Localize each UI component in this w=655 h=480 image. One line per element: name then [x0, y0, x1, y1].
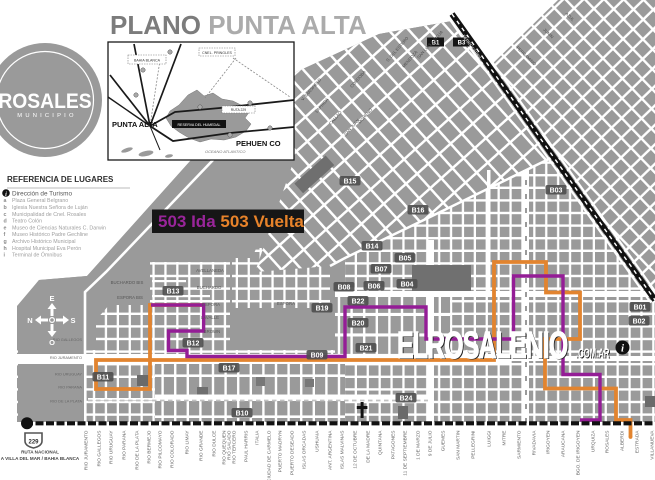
svg-text:RIO DULCE: RIO DULCE: [212, 431, 218, 457]
svg-text:RIO PARANA: RIO PARANA: [58, 385, 82, 390]
svg-text:REFERENCIA DE LUGARES: REFERENCIA DE LUGARES: [7, 175, 114, 184]
svg-text:B10: B10: [236, 411, 249, 418]
svg-text:SARMIENTO: SARMIENTO: [517, 430, 523, 459]
svg-text:RIO GALLEGOS: RIO GALLEGOS: [97, 431, 103, 467]
svg-text:i: i: [5, 191, 7, 198]
svg-text:Terminal de Ómnibus: Terminal de Ómnibus: [12, 252, 62, 259]
svg-text:ISLAS MALVINAS: ISLAS MALVINAS: [340, 431, 346, 470]
svg-text:12 DE OCTUBRE: 12 DE OCTUBRE: [353, 431, 359, 469]
svg-text:11 DE SEPTIEMBRE: 11 DE SEPTIEMBRE: [403, 431, 409, 476]
svg-text:E: E: [49, 294, 54, 303]
svg-text:GUEMES: GUEMES: [441, 431, 447, 452]
svg-text:RIO COLORADO: RIO COLORADO: [170, 430, 176, 468]
svg-text:B21: B21: [360, 346, 373, 353]
svg-text:Archivo Histórico Municipal: Archivo Histórico Municipal: [12, 239, 76, 245]
svg-text:h: h: [4, 246, 7, 252]
svg-text:RIO PILCOMAYO: RIO PILCOMAYO: [158, 430, 164, 468]
svg-text:PAUL HARRIS: PAUL HARRIS: [244, 431, 250, 462]
svg-text:PELLEGRINI: PELLEGRINI: [471, 431, 477, 459]
svg-text:RIO JURAMENTO: RIO JURAMENTO: [50, 355, 82, 360]
svg-text:LUIGGI: LUIGGI: [487, 431, 493, 447]
svg-text:B11: B11: [97, 375, 110, 382]
svg-text:.COM.AR: .COM.AR: [576, 348, 610, 361]
svg-text:ISLAS ORCADAS: ISLAS ORCADAS: [302, 431, 308, 470]
svg-text:PATAGONES: PATAGONES: [391, 431, 397, 460]
svg-text:B12: B12: [187, 341, 200, 348]
svg-text:e: e: [4, 225, 7, 231]
svg-text:RIO PARANA: RIO PARANA: [122, 430, 128, 460]
svg-text:c: c: [4, 212, 7, 218]
svg-text:d: d: [4, 219, 7, 225]
svg-text:ANT. ARGENTINA: ANT. ARGENTINA: [328, 430, 334, 470]
svg-text:ESPORA: ESPORA: [277, 301, 295, 306]
svg-text:ESTRADA: ESTRADA: [635, 430, 641, 453]
svg-text:PLANO PUNTA ALTA: PLANO PUNTA ALTA: [110, 10, 367, 40]
svg-text:B08: B08: [338, 285, 351, 292]
svg-text:RIO URUGUAY: RIO URUGUAY: [55, 372, 83, 377]
svg-text:RESERVA DEL HUMEDAL: RESERVA DEL HUMEDAL: [177, 123, 220, 127]
svg-text:RIVADAVIA: RIVADAVIA: [532, 430, 538, 456]
svg-text:B19: B19: [316, 306, 329, 313]
svg-text:RIO DE LA PLATA: RIO DE LA PLATA: [50, 399, 82, 404]
svg-text:AVELLANEDA: AVELLANEDA: [196, 268, 224, 273]
svg-text:b: b: [4, 205, 8, 211]
svg-text:URQUIZA: URQUIZA: [591, 430, 597, 452]
svg-text:B02: B02: [633, 319, 646, 326]
svg-text:B03: B03: [550, 188, 563, 195]
svg-text:VILLANUEVA: VILLANUEVA: [650, 430, 655, 460]
svg-text:B09: B09: [311, 353, 324, 360]
svg-text:ALBERDI: ALBERDI: [620, 431, 626, 452]
svg-text:B24: B24: [400, 396, 413, 403]
svg-text:ARAUCANA: ARAUCANA: [561, 430, 567, 457]
svg-text:RIO GALLEGOS: RIO GALLEGOS: [53, 337, 83, 342]
svg-text:CNEL. PRINGLES: CNEL. PRINGLES: [202, 51, 232, 55]
svg-text:Municipalidad de Cnel. Rosales: Municipalidad de Cnel. Rosales: [12, 212, 87, 218]
svg-text:B16: B16: [412, 208, 425, 215]
svg-text:QUINTANA: QUINTANA: [378, 430, 384, 455]
svg-text:229: 229: [28, 440, 39, 446]
svg-text:USHUAIA: USHUAIA: [315, 430, 321, 452]
svg-text:B14: B14: [366, 244, 379, 251]
svg-text:PEHUEN CO: PEHUEN CO: [236, 139, 281, 148]
svg-text:i: i: [4, 253, 6, 259]
svg-text:Plaza General Belgrano: Plaza General Belgrano: [12, 198, 68, 204]
svg-text:O: O: [49, 338, 55, 347]
svg-text:RIO TERCERO: RIO TERCERO: [232, 430, 238, 463]
svg-text:a: a: [4, 198, 7, 204]
svg-text:IRIGOYEN: IRIGOYEN: [546, 430, 552, 454]
svg-text:B06: B06: [368, 284, 381, 291]
svg-text:Museo Histórico Padre Gechline: Museo Histórico Padre Gechline: [12, 232, 88, 238]
svg-text:RIO LIMAY: RIO LIMAY: [185, 430, 191, 455]
svg-text:BGO. DE IRIGOYEN: BGO. DE IRIGOYEN: [576, 430, 582, 475]
svg-text:503 Ida 503 Vuelta: 503 Ida 503 Vuelta: [158, 212, 304, 231]
svg-text:BAHIA BLANCA: BAHIA BLANCA: [134, 59, 161, 63]
svg-text:ROSALES: ROSALES: [0, 90, 92, 113]
svg-text:B13: B13: [167, 289, 180, 296]
svg-text:S: S: [70, 316, 75, 325]
svg-text:Hospital Municipal Eva Perón: Hospital Municipal Eva Perón: [12, 246, 81, 252]
svg-text:ITALIA: ITALIA: [255, 430, 261, 445]
svg-text:N: N: [27, 316, 32, 325]
svg-text:B15: B15: [344, 179, 357, 186]
svg-text:ROSALES: ROSALES: [605, 431, 611, 454]
svg-text:BROWN: BROWN: [204, 329, 220, 334]
svg-text:PUERTO DESEADO: PUERTO DESEADO: [290, 430, 296, 475]
svg-text:RIO URUGUAY: RIO URUGUAY: [109, 430, 115, 464]
svg-text:BUCHARDO: BUCHARDO: [197, 285, 222, 290]
svg-text:BUCHARDO BIS: BUCHARDO BIS: [111, 280, 144, 285]
svg-text:f: f: [4, 232, 6, 238]
svg-text:RUTA 229: RUTA 229: [231, 108, 247, 112]
svg-text:ESPORA BIS: ESPORA BIS: [117, 295, 143, 300]
svg-text:LAVALLE: LAVALLE: [201, 315, 219, 320]
svg-text:SAN MARTIN: SAN MARTIN: [456, 430, 462, 460]
svg-text:Iglesia Nuestra Señora de Lujá: Iglesia Nuestra Señora de Luján: [12, 205, 88, 211]
svg-text:RIO DE LA PLATA: RIO DE LA PLATA: [135, 430, 141, 470]
svg-text:DE LA MADRE: DE LA MADRE: [366, 431, 372, 463]
svg-text:B05: B05: [399, 256, 412, 263]
svg-text:1 DE MARZO: 1 DE MARZO: [416, 430, 422, 460]
svg-text:A VILLA DEL MAR / BAHIA BLANCA: A VILLA DEL MAR / BAHIA BLANCA: [1, 456, 80, 461]
svg-text:ESPORA: ESPORA: [202, 302, 220, 307]
svg-text:RIO BERMEJO: RIO BERMEJO: [147, 430, 153, 463]
svg-text:B20: B20: [352, 321, 365, 328]
svg-text:Teatro Colón: Teatro Colón: [12, 219, 42, 225]
svg-text:Museo de Ciencias Naturales C.: Museo de Ciencias Naturales C. Darwin: [12, 225, 106, 231]
svg-text:PUNTA ALTA: PUNTA ALTA: [112, 120, 158, 129]
svg-text:B01: B01: [634, 305, 647, 312]
svg-text:OCEANO ATLANTICO: OCEANO ATLANTICO: [205, 149, 245, 154]
svg-text:CIUDAD DE CARMELO: CIUDAD DE CARMELO: [267, 430, 273, 480]
svg-text:B22: B22: [352, 299, 365, 306]
svg-text:B07: B07: [375, 267, 388, 274]
svg-text:ELROSALENIO: ELROSALENIO: [397, 324, 567, 366]
svg-text:B04: B04: [401, 282, 414, 289]
svg-text:g: g: [4, 239, 7, 245]
svg-text:B17: B17: [223, 366, 236, 373]
svg-text:RUTA NACIONAL: RUTA NACIONAL: [21, 450, 59, 455]
svg-text:RIO GRANDE: RIO GRANDE: [199, 431, 205, 461]
svg-text:9 DE JULIO: 9 DE JULIO: [428, 430, 434, 456]
svg-text:RIO JURAMENTO: RIO JURAMENTO: [84, 430, 90, 470]
svg-text:MITRE: MITRE: [502, 431, 508, 446]
svg-text:PUERTO MADRYN: PUERTO MADRYN: [278, 430, 284, 472]
svg-text:MUNICIPIO: MUNICIPIO: [17, 113, 76, 119]
svg-text:Dirección de Turismo: Dirección de Turismo: [12, 191, 72, 198]
